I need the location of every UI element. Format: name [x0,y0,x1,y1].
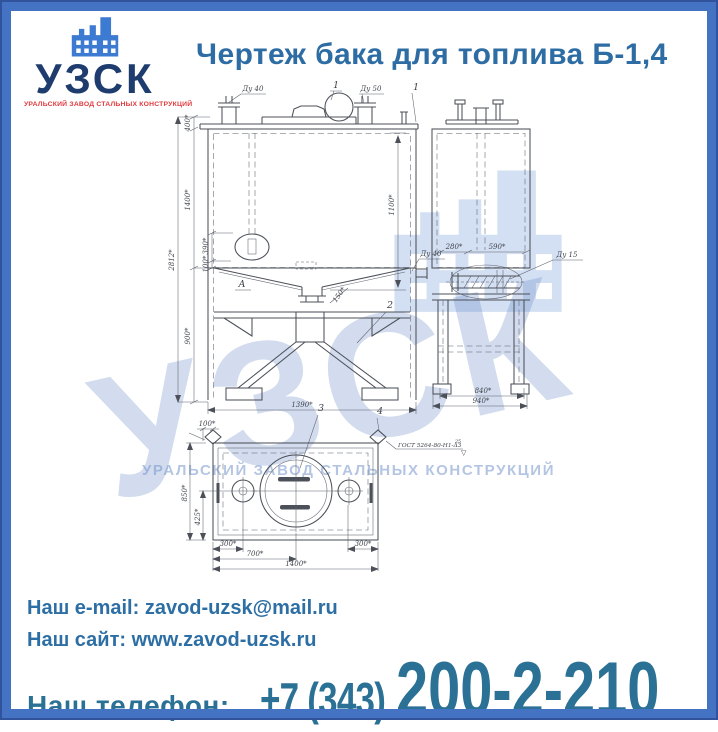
email-value: zavod-uzsk@mail.ru [145,597,338,619]
dim-1400: 1400* [184,189,192,211]
dim-300-right: 300* [355,540,372,548]
site-value: www.zavod-uzsk.ru [132,629,317,651]
phone-number: 200-2-210 [396,652,659,728]
site-label: Наш сайт: [27,629,126,651]
company-logo: УЗСК УРАЛЬСКИЙ ЗАВОД СТАЛЬНЫХ КОНСТРУКЦИ… [24,14,166,108]
dim-100: 100* [202,255,210,272]
email-line: Наш e-mail: zavod-uzsk@mail.ru [27,597,338,620]
watermark-company-abbr: УЗСК [78,248,587,528]
page-title: Чертеж бака для топлива Б-1,4 [196,38,704,72]
site-line: Наш сайт: www.zavod-uzsk.ru [27,629,316,652]
item-balloon-1b: 1 [413,82,419,93]
item-balloon-1: 1 [333,80,339,91]
watermark-company-slogan: УРАЛЬСКИЙ ЗАВОД СТАЛЬНЫХ КОНСТРУКЦИЙ [142,462,555,479]
dim-390: 390* [202,237,210,254]
factory-icon [70,14,120,58]
dim-plan-1400: 1400* [285,560,307,568]
dim-300-left: 300* [220,540,237,548]
email-label: Наш e-mail: [27,597,139,619]
company-slogan: УРАЛЬСКИЙ ЗАВОД СТАЛЬНЫХ КОНСТРУКЦИЙ [24,101,166,108]
company-abbr: УЗСК [24,58,166,100]
phone-line: Наш телефон: +7 (343) 200-2-210 [27,652,718,728]
phone-label: Наш телефон: [27,690,230,722]
label-du50-top: Ду 50 [360,85,382,93]
dim-400: 400* [184,114,192,132]
phone-area-code: +7 (343) [260,676,385,722]
dim-2812: 2812* [168,249,176,272]
label-du40-top: Ду 40 [242,85,264,93]
dim-700: 700* [247,550,264,558]
view-a-label: А [237,279,245,290]
